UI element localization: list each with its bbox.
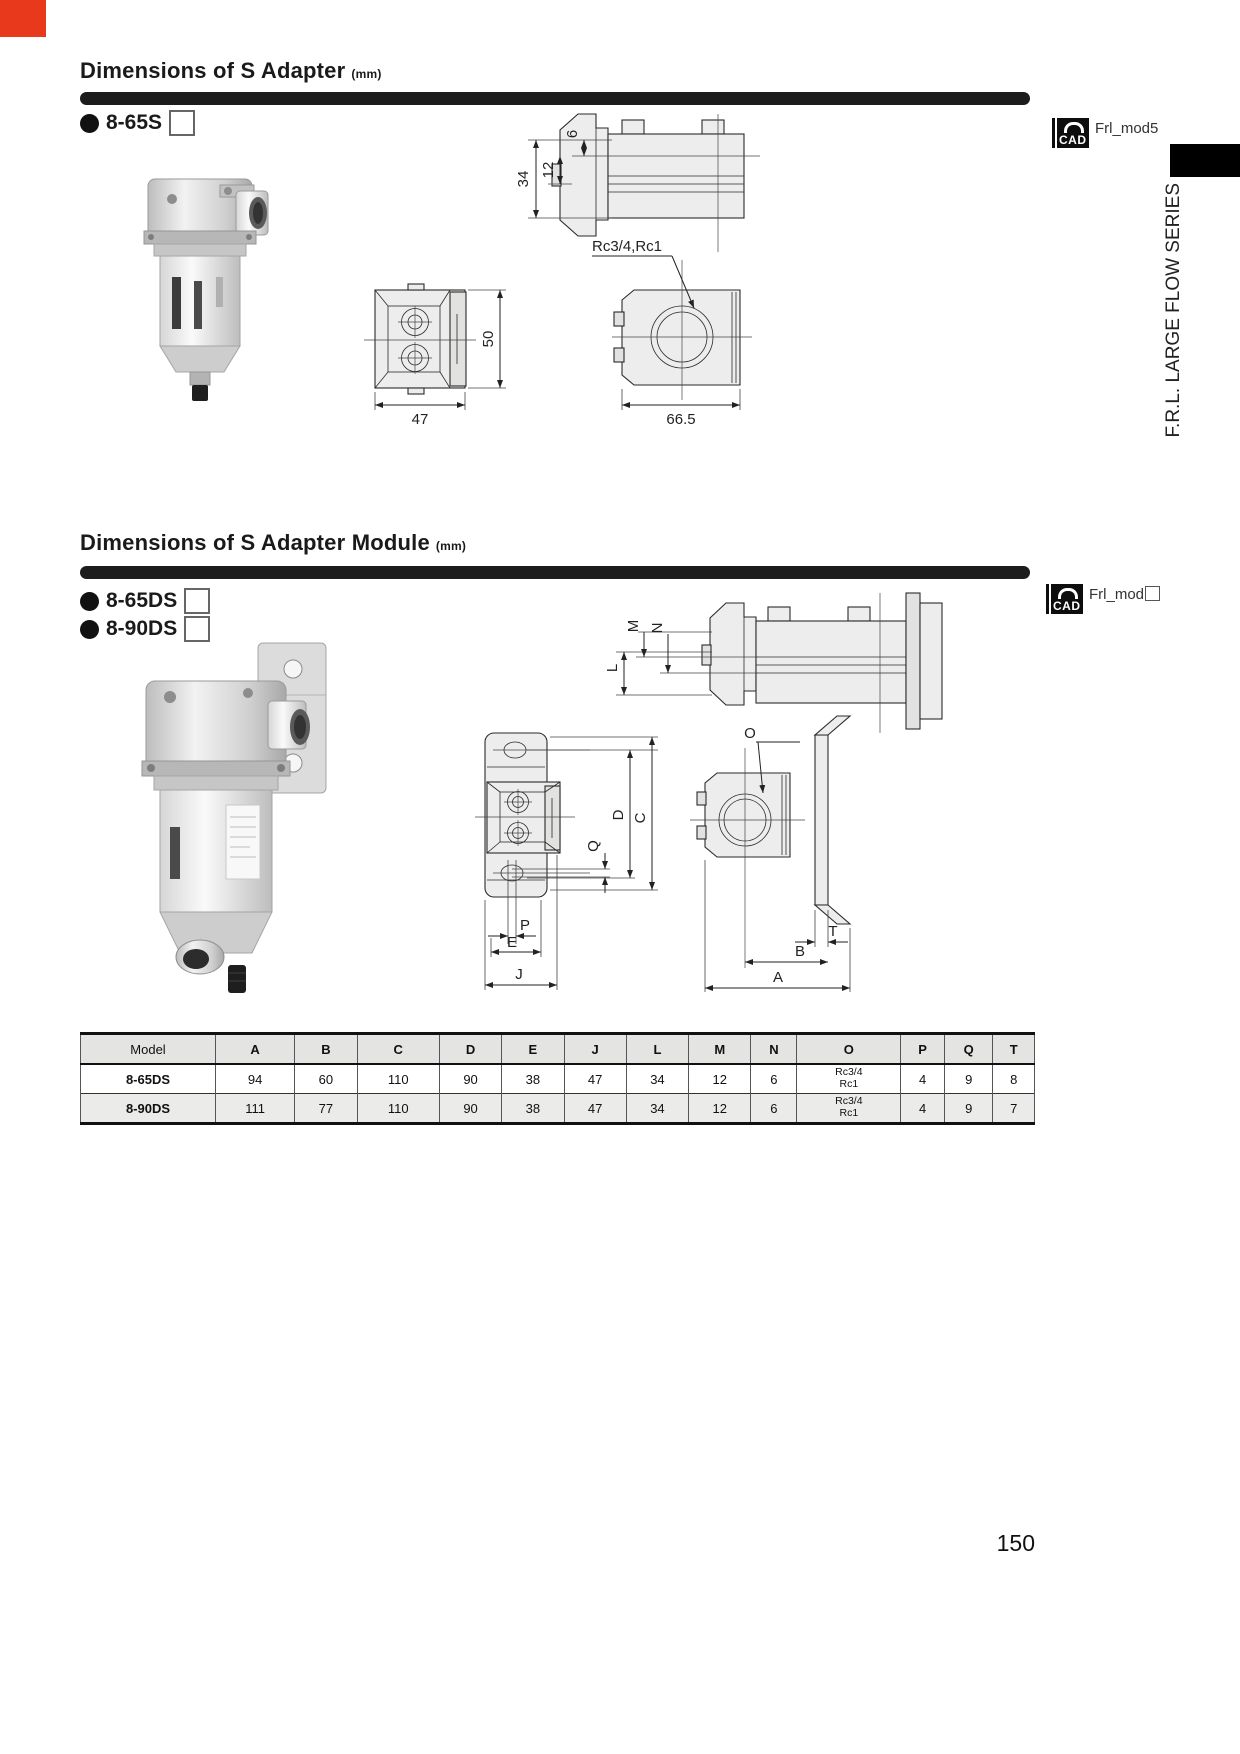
cell-value: 6	[751, 1094, 797, 1124]
model-suffix-box	[184, 588, 210, 614]
cell-value: 110	[357, 1094, 439, 1124]
dims-table-head: ModelABCDEJLMNOPQT	[81, 1034, 1035, 1065]
model-name: 8-65DS	[106, 589, 177, 613]
side-tab	[1170, 144, 1240, 177]
port-label: Rc3/4,Rc1	[592, 238, 662, 255]
section1-title-text: Dimensions of S Adapter	[80, 58, 345, 83]
cell-value: 38	[502, 1094, 564, 1124]
bullet-icon	[80, 592, 99, 611]
cell-value: 7	[993, 1094, 1035, 1124]
model-line-8-65s: 8-65S	[80, 110, 195, 136]
dims-table-body: 8-65DS946011090384734126Rc3/4 Rc14988-90…	[81, 1064, 1035, 1124]
s1-top-view: 34 12 6	[515, 114, 760, 252]
model-name: 8-65S	[106, 111, 162, 135]
dim-E: E	[507, 934, 517, 951]
cell-value: 38	[502, 1064, 564, 1094]
table-header-model: Model	[81, 1034, 216, 1065]
table-header-o: O	[797, 1034, 901, 1065]
cell-value: 9	[945, 1094, 993, 1124]
cad-file-name: Frl_mod5	[1095, 120, 1158, 137]
dim-L: L	[604, 664, 621, 672]
cell-value: 12	[689, 1064, 751, 1094]
table-header-row: ModelABCDEJLMNOPQT	[81, 1034, 1035, 1065]
cad-badge-2: CAD Frl_mod	[1046, 584, 1160, 614]
s1-side-view: Rc3/4,Rc1 66.5	[592, 238, 752, 428]
model-suffix-box	[169, 110, 195, 136]
cad-icon-label: CAD	[1053, 599, 1081, 613]
dim-O: O	[744, 725, 756, 742]
cad-file-name: Frl_mod	[1089, 586, 1160, 603]
table-header-d: D	[439, 1034, 501, 1065]
section2-dimension-drawings: M N L	[360, 540, 1040, 1010]
dim-50: 50	[480, 331, 497, 348]
cell-value: 34	[626, 1064, 688, 1094]
section1-dimension-drawings: 34 12 6 50 47	[360, 100, 1040, 440]
cad-badge-1: CAD Frl_mod5	[1052, 118, 1158, 148]
cell-value: 90	[439, 1094, 501, 1124]
product-photo-s-adapter	[120, 165, 280, 405]
cad-file-suffix-box	[1145, 586, 1160, 601]
cell-value: 47	[564, 1064, 626, 1094]
s2-top-view: M N L	[604, 593, 942, 733]
dim-34: 34	[515, 171, 532, 188]
cad-icon-label: CAD	[1059, 133, 1087, 147]
dim-T: T	[828, 923, 837, 940]
table-header-p: P	[901, 1034, 945, 1065]
cell-value: 34	[626, 1094, 688, 1124]
catalog-page: Dimensions of S Adapter(mm) 8-65S CAD Fr…	[0, 0, 1240, 1754]
s2-front-view: D C Q P E J	[475, 733, 658, 990]
table-header-q: Q	[945, 1034, 993, 1065]
dim-A: A	[773, 969, 783, 986]
dim-6: 6	[564, 130, 581, 138]
series-side-label: F.R.L. LARGE FLOW SERIES	[1164, 183, 1183, 437]
cell-value: 110	[357, 1064, 439, 1094]
table-header-t: T	[993, 1034, 1035, 1065]
table-row-8-65ds: 8-65DS946011090384734126Rc3/4 Rc1498	[81, 1064, 1035, 1094]
table-header-m: M	[689, 1034, 751, 1065]
cad-arc-icon	[1064, 122, 1084, 133]
cell-model: 8-90DS	[81, 1094, 216, 1124]
table-header-e: E	[502, 1034, 564, 1065]
section1-title: Dimensions of S Adapter(mm)	[80, 58, 382, 84]
page-number: 150	[930, 1530, 1035, 1557]
cell-value: Rc3/4 Rc1	[797, 1094, 901, 1124]
table-row-8-90ds: 8-90DS1117711090384734126Rc3/4 Rc1497	[81, 1094, 1035, 1124]
cell-value: 12	[689, 1094, 751, 1124]
table-header-c: C	[357, 1034, 439, 1065]
cell-model: 8-65DS	[81, 1064, 216, 1094]
cell-value: 9	[945, 1064, 993, 1094]
bullet-icon	[80, 620, 99, 639]
cell-value: 111	[216, 1094, 295, 1124]
cad-icon: CAD	[1046, 584, 1083, 614]
dim-M: M	[625, 620, 642, 633]
dim-47: 47	[412, 411, 429, 428]
cell-value: 94	[216, 1064, 295, 1094]
table-header-n: N	[751, 1034, 797, 1065]
dim-B: B	[795, 943, 805, 960]
cell-value: 60	[295, 1064, 357, 1094]
cell-value: 4	[901, 1094, 945, 1124]
cad-icon: CAD	[1052, 118, 1089, 148]
s2-side-view: O T B A	[690, 716, 850, 992]
section1-unit: (mm)	[351, 67, 381, 81]
cell-value: 90	[439, 1064, 501, 1094]
dim-D: D	[610, 809, 627, 820]
cell-value: 47	[564, 1094, 626, 1124]
dims-table: ModelABCDEJLMNOPQT 8-65DS946011090384734…	[80, 1032, 1035, 1125]
dim-12: 12	[540, 162, 557, 179]
cad-arc-icon	[1058, 588, 1078, 599]
dim-C: C	[632, 812, 649, 823]
dim-66-5: 66.5	[666, 411, 695, 428]
corner-marker	[0, 0, 46, 37]
dim-P: P	[520, 917, 530, 934]
bullet-icon	[80, 114, 99, 133]
cell-value: Rc3/4 Rc1	[797, 1064, 901, 1094]
table-header-l: L	[626, 1034, 688, 1065]
dim-Q: Q	[585, 840, 602, 852]
model-line-8-65ds: 8-65DS	[80, 588, 210, 614]
dim-N: N	[649, 623, 666, 634]
product-photo-s-adapter-module	[130, 635, 340, 1020]
table-header-j: J	[564, 1034, 626, 1065]
cell-value: 4	[901, 1064, 945, 1094]
cell-value: 6	[751, 1064, 797, 1094]
s1-front-view: 50 47	[364, 284, 506, 428]
table-header-a: A	[216, 1034, 295, 1065]
dim-J: J	[515, 966, 523, 983]
cell-value: 8	[993, 1064, 1035, 1094]
cell-value: 77	[295, 1094, 357, 1124]
table-header-b: B	[295, 1034, 357, 1065]
